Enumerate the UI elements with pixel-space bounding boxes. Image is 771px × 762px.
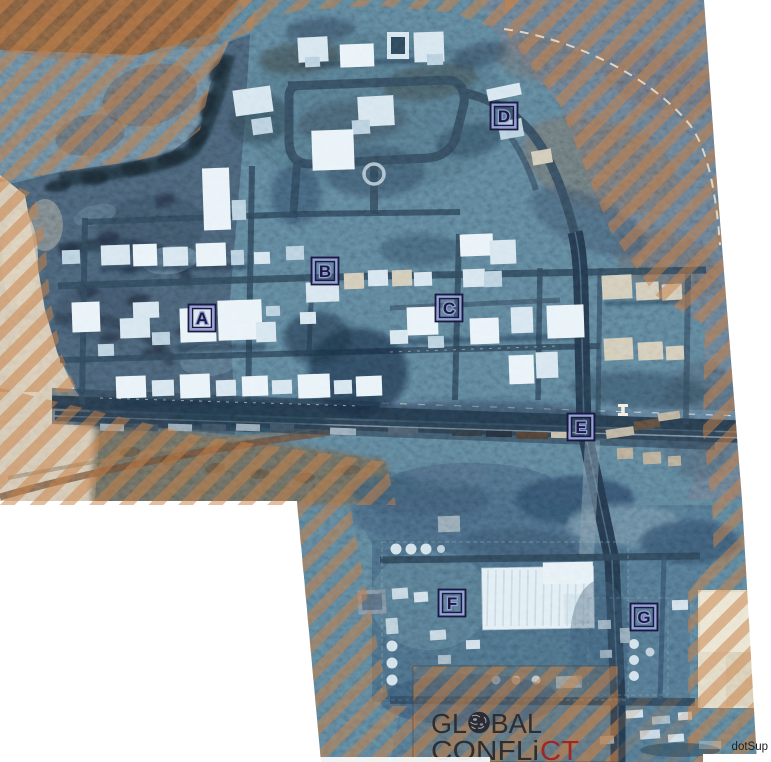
svg-text:dotSup: dotSup: [732, 741, 768, 753]
svg-text:G: G: [637, 608, 650, 627]
svg-text:CT: CT: [540, 735, 579, 762]
svg-text:C: C: [443, 299, 455, 318]
svg-text:B: B: [319, 262, 331, 281]
svg-text:D: D: [498, 107, 510, 126]
svg-text:A: A: [196, 309, 208, 328]
svg-text:F: F: [447, 594, 457, 613]
svg-text:E: E: [575, 418, 586, 437]
